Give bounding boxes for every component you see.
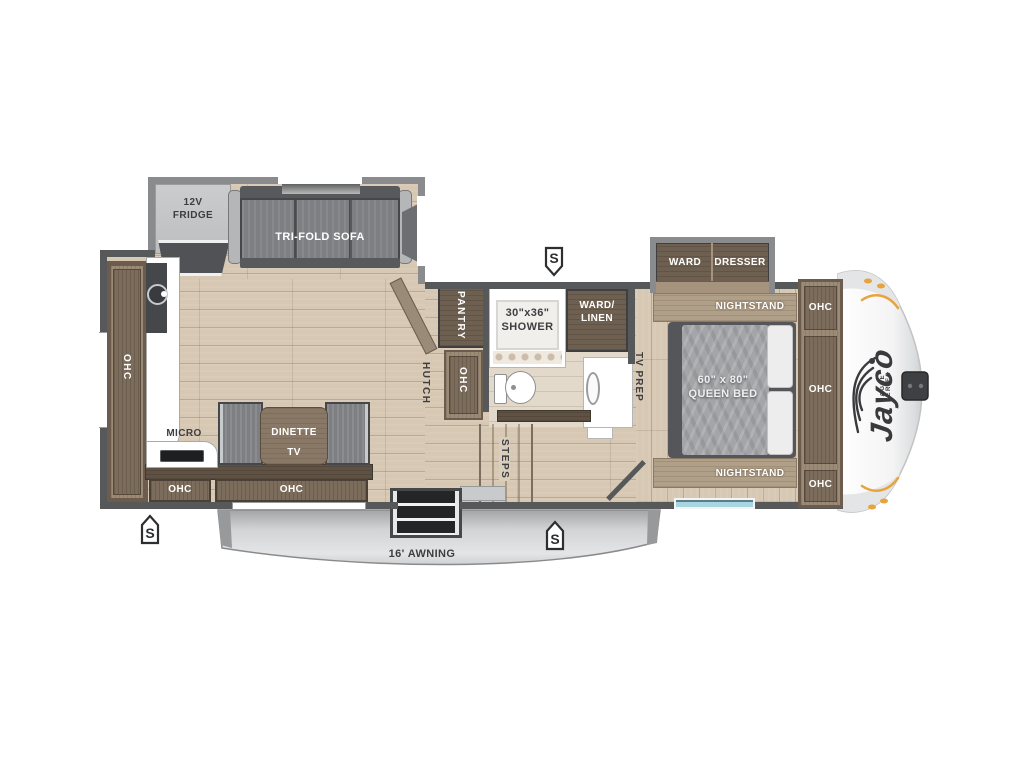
med-label: MED [609, 374, 620, 401]
cooktop [160, 450, 204, 462]
svg-text:S: S [549, 250, 558, 266]
slide-corner-window [417, 196, 425, 266]
shower-door-track [493, 351, 562, 364]
bed-label: 60" x 80" QUEEN BED [668, 374, 778, 402]
vanity-step [587, 427, 613, 439]
speaker-icon: S [140, 514, 160, 545]
dinette-bench-right [325, 402, 370, 465]
kitchen-faucet [161, 291, 167, 297]
tv-prep-label: TV PREP [633, 352, 644, 402]
ohc-bottom-large-label: OHC [215, 484, 368, 497]
wall-bottom-1 [100, 502, 232, 509]
wall-top-left [100, 250, 155, 257]
ohc-right-mid-label: OHC [798, 384, 843, 397]
hitch-bolt [919, 384, 923, 388]
speaker-icon: S [545, 520, 565, 551]
marker-light [864, 279, 872, 284]
vanity-sink [586, 372, 600, 405]
ward-linen-label: WARD/ LINEN [566, 300, 628, 325]
awning-end-right [647, 510, 660, 545]
slide-corner-glass [402, 204, 418, 262]
dresser-label: DRESSER [711, 257, 769, 270]
window-left [99, 332, 107, 428]
ward-label: WARD [658, 257, 712, 270]
bed-slide-wall-top [650, 237, 775, 243]
slide-window-shade [282, 184, 360, 194]
sofa-front [240, 258, 400, 268]
awning-label: 16' AWNING [376, 548, 468, 562]
wall-bath-left [483, 284, 489, 412]
nightstand-top-label: NIGHTSTAND [700, 301, 800, 314]
wall-top-mid [425, 282, 653, 289]
dinette-label: DINETTE [258, 427, 330, 440]
speaker-icon: S [544, 246, 564, 277]
toilet-bowl [505, 371, 536, 404]
wall-bath-half [497, 410, 591, 422]
ohc-right-bottom-label: OHC [798, 479, 843, 492]
steps-label: STEPS [499, 437, 510, 481]
entry-steps [390, 488, 462, 538]
shower-label: 30"x36" SHOWER [489, 307, 566, 335]
fridge-label: 12V FRIDGE [155, 197, 231, 222]
ohc-mid-label: OHC [457, 367, 468, 394]
dinette-tv-label: TV [258, 447, 330, 460]
marker-light [877, 284, 885, 289]
awning-end-left [218, 510, 232, 548]
bed-slide-wall-right [769, 237, 775, 293]
ohc-right-top-label: OHC [798, 302, 843, 315]
wall-bottom-3 [460, 502, 674, 509]
marker-light [880, 499, 888, 504]
sofa-label: TRI-FOLD SOFA [245, 231, 395, 245]
sofa-seat [240, 198, 400, 260]
svg-text:S: S [145, 525, 154, 541]
marker-light [868, 505, 876, 510]
dinette-bench-left [218, 402, 263, 465]
rv-floorplan: Jayco EAGLE SERIES 16' AWNING 12V FRIDGE… [0, 0, 1024, 768]
ohc-left-cabinet-face [113, 269, 141, 495]
micro-label: MICRO [152, 428, 216, 441]
hitch-pin-box [902, 372, 928, 400]
wall-bottom-2 [366, 502, 398, 509]
sofa-slide-wall-left [148, 177, 155, 257]
slide-window-top [278, 177, 362, 184]
bed-slide-wall-left [650, 237, 656, 293]
ward-dresser-front [656, 281, 769, 293]
pantry-label: PANTRY [455, 291, 466, 340]
toilet-flush [511, 385, 516, 390]
hutch-label: HUTCH [420, 362, 431, 405]
hitch-bolt [908, 384, 912, 388]
window-bedroom [674, 498, 755, 509]
ohc-bottom-small-label: OHC [149, 484, 211, 497]
window-bottom-left [232, 502, 366, 510]
entry-landing [460, 486, 506, 501]
brand-series-text: EAGLE SERIES [880, 342, 890, 402]
svg-text:S: S [550, 531, 559, 547]
nightstand-bottom-label: NIGHTSTAND [700, 468, 800, 481]
ohc-left-label: OHC [121, 354, 132, 381]
ohc-right-mid [804, 336, 837, 464]
